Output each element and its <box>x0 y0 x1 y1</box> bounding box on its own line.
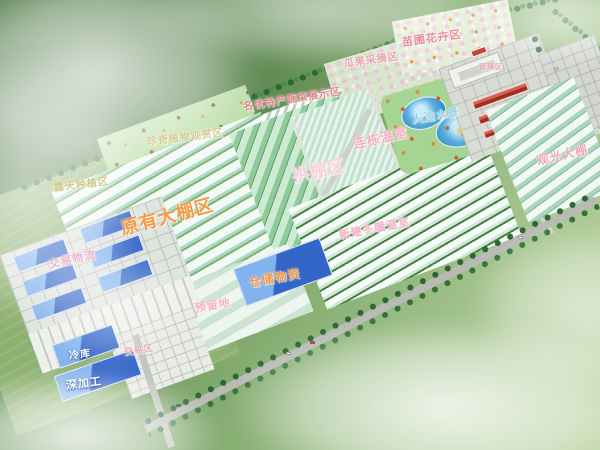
car <box>553 67 559 72</box>
label-management-area: 管理区 <box>479 62 503 72</box>
site-plan-rendering: 苗圃花卉区 瓜果采摘区 名优特产蔬菜展示区 珍奇植物观赏区 露天种植区 连栋温室… <box>0 0 600 450</box>
label-cold-storage: 冷库 <box>68 344 92 362</box>
